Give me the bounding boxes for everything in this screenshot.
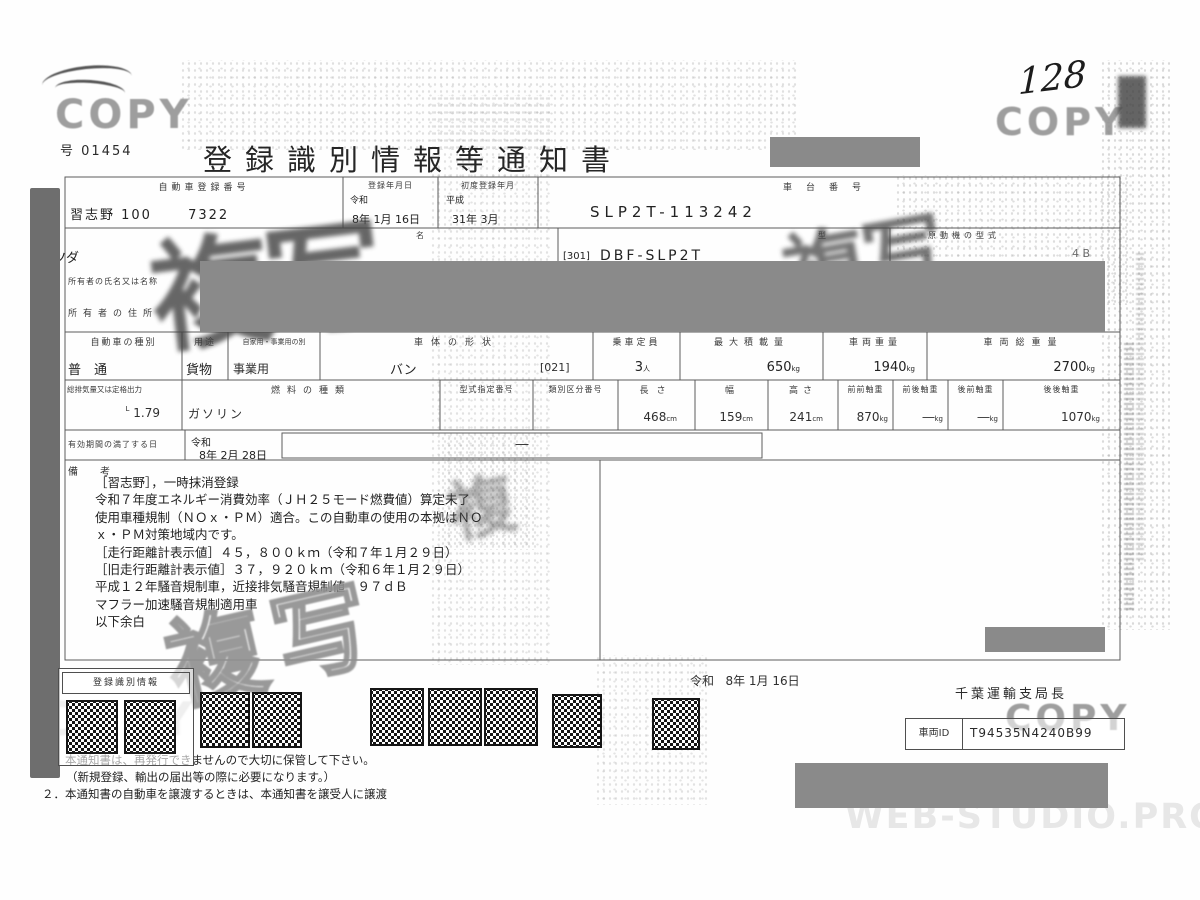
qr-code (552, 694, 602, 748)
redaction-box (985, 627, 1105, 652)
qr-code (428, 688, 482, 746)
qr-code (200, 692, 250, 748)
redaction-box (770, 137, 920, 167)
qr-code (370, 688, 424, 746)
qr-code (124, 700, 176, 754)
note-line-2: （新規登録、輸出の届出等の際に必要になります。） (66, 769, 335, 785)
registration-info-label: 登録識別情報 (62, 672, 190, 694)
qr-code (652, 698, 700, 750)
scanned-document: COPY 号 01454 登録識別情報等通知書 128 COPY (0, 0, 1200, 900)
redaction-box (200, 261, 1105, 332)
vehicle-id-box: 車両ID T94535N4240B99 (905, 718, 1125, 750)
qr-code (66, 700, 118, 754)
redaction-box (795, 763, 1108, 808)
qr-code (484, 688, 538, 746)
vehicle-id-value: T94535N4240B99 (970, 726, 1093, 740)
scan-edge-bar (30, 188, 60, 778)
note-line-3: ２．本通知書の自動車を譲渡するときは、本通知書を譲受人に譲渡 (42, 786, 387, 802)
vehicle-id-label: 車両ID (906, 719, 963, 749)
qr-code (252, 692, 302, 748)
